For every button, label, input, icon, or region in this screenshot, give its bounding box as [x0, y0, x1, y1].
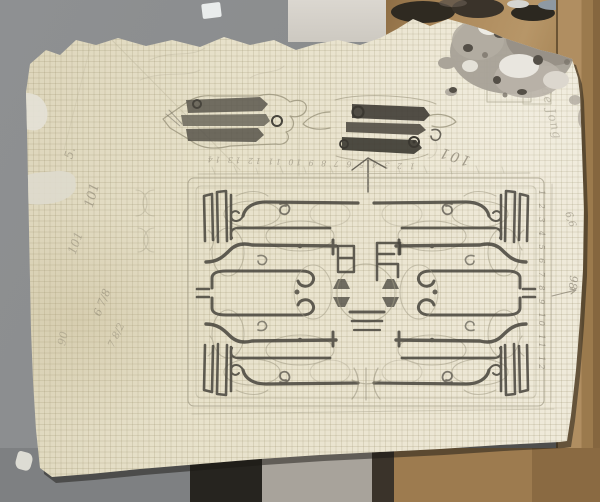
- scanner-card: [288, 0, 386, 42]
- graph-paper-sheet: 101 1 2 3 4 5 6 7 8 9 10 11 12 13 14 1 2…: [0, 0, 600, 502]
- scanned-drawing-scene: 101 1 2 3 4 5 6 7 8 9 10 11 12 13 14 1 2…: [0, 0, 600, 502]
- paper-mount-tab: [201, 2, 222, 19]
- stain-overlay: [0, 0, 600, 502]
